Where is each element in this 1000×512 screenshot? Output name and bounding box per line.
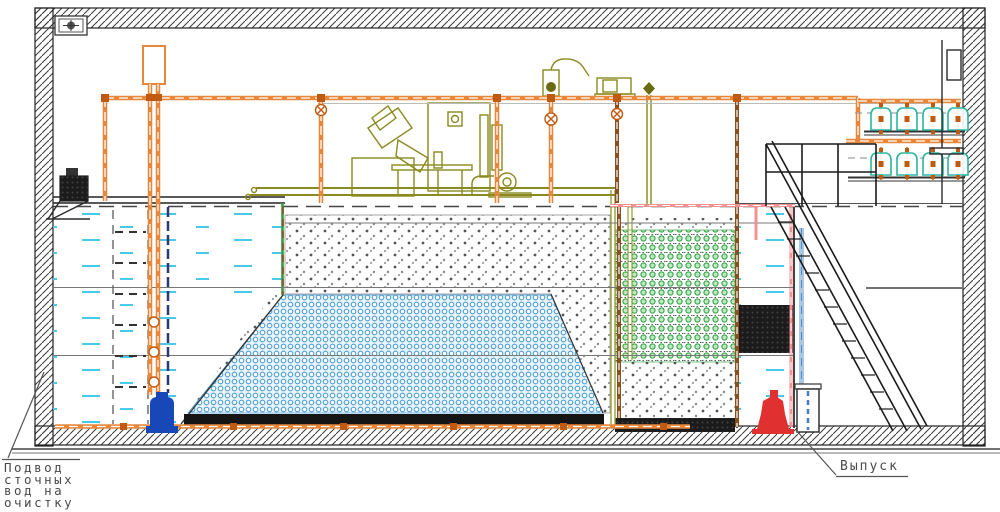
diffuser-bottle [897, 102, 917, 135]
power-cable [551, 59, 589, 76]
ceiling-fan-icon [55, 16, 87, 35]
diffuser-rack [846, 98, 968, 181]
check-valve-icon [643, 82, 655, 95]
outlet-label: Выпуск [840, 461, 899, 473]
diffuser-bottle [871, 102, 891, 135]
right-wall [963, 8, 985, 446]
green-media [615, 230, 735, 362]
screen-basket [60, 176, 88, 201]
section-scene: .po{stroke:#E8873A;stroke-width:4.5;fill… [0, 0, 1000, 512]
plant-section-drawing: .po{stroke:#E8873A;stroke-width:4.5;fill… [0, 0, 1000, 512]
diffuser-bottle [897, 147, 917, 180]
left-wall [35, 8, 53, 446]
diffuser-bottle [923, 147, 943, 180]
expansion-tank [143, 46, 165, 84]
lower-gravel [615, 362, 735, 418]
ceiling-slab [35, 8, 985, 28]
inlet-label: Подвод сточных вод на очистку [4, 462, 74, 508]
blue-media-bed [188, 295, 603, 413]
diffuser-bottle [871, 147, 891, 180]
thin-layer-module [739, 305, 793, 353]
screen-machine [246, 103, 617, 200]
top-gravel-band [615, 218, 735, 230]
blower-unit [543, 59, 655, 204]
diffuser-bottle [923, 102, 943, 135]
biofilter-chamber [611, 190, 737, 432]
inlet-label-line-4: очистку [4, 497, 74, 509]
handrail-b [772, 141, 927, 426]
